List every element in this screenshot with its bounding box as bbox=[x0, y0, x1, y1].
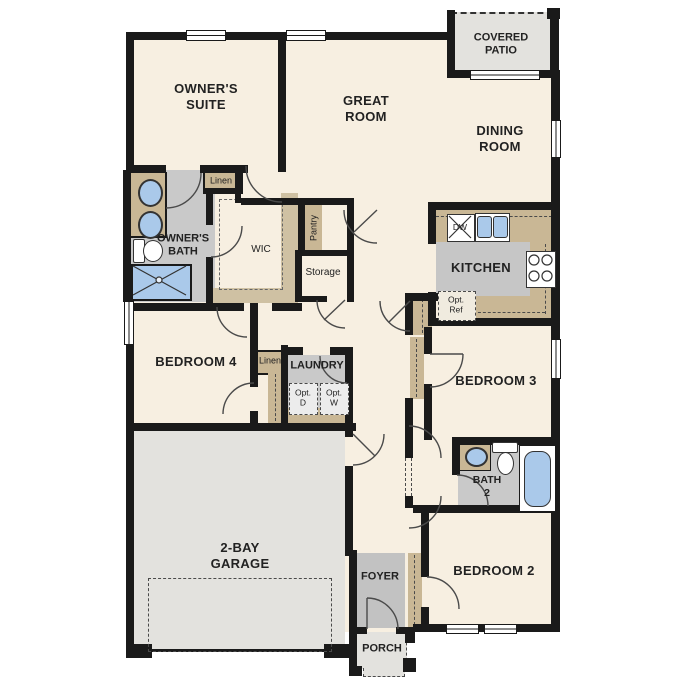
wall bbox=[405, 496, 413, 508]
kitchen-upper-cabinet-dash bbox=[473, 312, 545, 313]
wall bbox=[428, 292, 436, 326]
hall-linen-b bbox=[410, 337, 424, 399]
cased-opening bbox=[411, 458, 412, 496]
wall bbox=[424, 384, 432, 440]
label-pantry: Pantry bbox=[309, 215, 320, 241]
wall bbox=[241, 198, 301, 205]
wall bbox=[403, 658, 416, 672]
kitchen-counter-bottom bbox=[471, 296, 552, 318]
wall bbox=[126, 32, 134, 172]
wall bbox=[452, 437, 460, 475]
label-opt-d: Opt. D bbox=[295, 388, 311, 409]
room-label-bedroom3: BEDROOM 3 bbox=[455, 373, 536, 389]
room-foyer bbox=[357, 553, 405, 628]
wall bbox=[550, 8, 559, 74]
wall bbox=[278, 38, 286, 172]
wall bbox=[126, 165, 166, 173]
coat-closet-dash bbox=[414, 555, 415, 625]
garage-bay-outline bbox=[148, 578, 332, 652]
wall bbox=[206, 257, 213, 303]
wall bbox=[126, 428, 134, 656]
wall bbox=[126, 423, 356, 431]
kitchen-sink-bowl bbox=[477, 216, 492, 238]
window bbox=[484, 624, 517, 634]
shower bbox=[131, 264, 192, 301]
wall bbox=[250, 411, 258, 427]
room-label-owners-suite: OWNER'S SUITE bbox=[174, 81, 238, 113]
wall bbox=[298, 198, 354, 205]
room-label-bath2: BATH 2 bbox=[473, 474, 501, 500]
wall bbox=[298, 198, 305, 254]
hall-linen-b-dash bbox=[416, 339, 417, 397]
label-opt-ref: Opt. Ref bbox=[448, 295, 464, 316]
wall bbox=[428, 202, 559, 210]
wall bbox=[295, 296, 327, 302]
hall-closet-dash bbox=[275, 374, 276, 421]
room-label-laundry: LAUNDRY bbox=[290, 359, 343, 372]
room-label-great-room: GREAT ROOM bbox=[343, 93, 389, 125]
wall bbox=[349, 627, 367, 634]
wall bbox=[349, 550, 357, 675]
wall bbox=[447, 10, 455, 78]
room-label-bedroom2: BEDROOM 2 bbox=[453, 563, 534, 579]
label-opt-w: Opt. W bbox=[326, 388, 342, 409]
kitchen-sink-bowl bbox=[493, 216, 508, 238]
floor-plan: OWNER'S SUITE GREAT ROOM DINING ROOM COV… bbox=[0, 0, 687, 687]
window bbox=[186, 30, 226, 41]
room-label-dining-room: DINING ROOM bbox=[476, 123, 523, 155]
vanity-sink bbox=[138, 179, 163, 207]
wall bbox=[206, 193, 213, 225]
hall-linen-a-dash bbox=[422, 299, 423, 333]
wall bbox=[281, 345, 288, 427]
wall bbox=[272, 303, 302, 311]
bath2-sink bbox=[465, 447, 488, 467]
room-label-garage: 2-BAY GARAGE bbox=[211, 540, 270, 572]
room-label-wic: WIC bbox=[251, 244, 270, 256]
label-linen-2: Linen bbox=[259, 356, 281, 367]
room-label-porch: PORCH bbox=[362, 642, 402, 655]
window bbox=[551, 339, 561, 379]
wall bbox=[347, 198, 354, 302]
wall bbox=[295, 250, 353, 256]
wall bbox=[428, 202, 436, 244]
room-label-storage: Storage bbox=[305, 267, 340, 279]
sliding-door bbox=[470, 70, 540, 80]
coat-closet bbox=[408, 553, 422, 627]
wall bbox=[345, 466, 353, 556]
wall bbox=[123, 170, 131, 302]
room-label-foyer: FOYER bbox=[361, 570, 399, 583]
wall bbox=[424, 327, 432, 354]
wall bbox=[349, 666, 362, 676]
cased-opening bbox=[405, 458, 406, 496]
wall bbox=[405, 398, 413, 458]
room-label-covered-patio: COVERED PATIO bbox=[474, 32, 528, 59]
room-label-bedroom4: BEDROOM 4 bbox=[155, 354, 236, 370]
wall bbox=[250, 303, 258, 387]
window bbox=[124, 301, 134, 345]
wall bbox=[421, 509, 429, 577]
wall bbox=[281, 347, 303, 355]
window bbox=[286, 30, 326, 41]
wall bbox=[405, 293, 413, 335]
window bbox=[551, 120, 561, 158]
bath2-toilet-bowl bbox=[497, 452, 514, 475]
label-linen-1: Linen bbox=[210, 176, 232, 187]
room-label-kitchen: KITCHEN bbox=[451, 260, 511, 276]
stove bbox=[526, 251, 556, 288]
label-dw: DW bbox=[453, 222, 467, 232]
window bbox=[446, 624, 479, 634]
room-label-owners-bath: OWNER'S BATH bbox=[157, 233, 209, 260]
wic-shelf-band-bottom bbox=[213, 288, 298, 303]
bathtub-basin bbox=[524, 451, 551, 507]
wall bbox=[126, 303, 244, 311]
porch-step bbox=[363, 668, 405, 677]
